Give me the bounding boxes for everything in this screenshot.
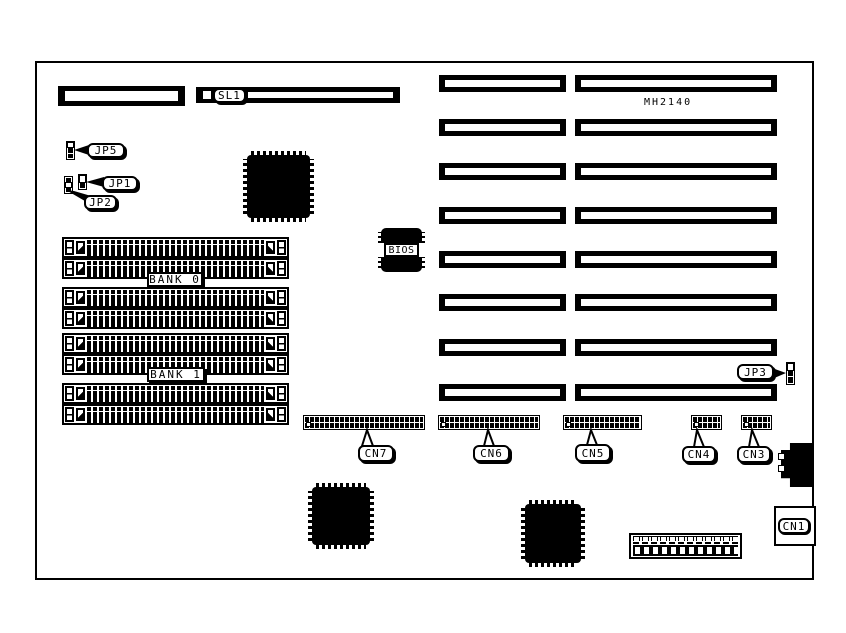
socket-clip xyxy=(76,408,85,421)
socket-clip xyxy=(76,241,85,254)
socket-clip xyxy=(76,262,85,275)
cn7-label: CN7 xyxy=(358,445,394,462)
pin1-marker xyxy=(306,422,311,427)
board-model-text: MH2140 xyxy=(644,97,692,108)
isa-slot-bar xyxy=(439,294,566,311)
isa-slot-bar xyxy=(575,384,777,401)
cn5-header xyxy=(563,415,642,430)
pin1-marker xyxy=(694,422,699,427)
socket-clip xyxy=(76,312,85,325)
jp1-label: JP1 xyxy=(102,176,138,191)
isa-slot-bar xyxy=(439,163,566,180)
slot-pin-marker xyxy=(203,91,211,99)
isa-slot-bar xyxy=(575,251,777,268)
cn3-label: CN3 xyxy=(737,446,771,463)
socket-pins xyxy=(87,311,264,327)
socket-endcap xyxy=(277,357,286,372)
socket-endcap xyxy=(277,261,286,276)
slot-stripe xyxy=(248,92,393,98)
power-pins xyxy=(633,545,738,556)
simm-socket xyxy=(62,237,289,258)
jp3-jumper xyxy=(786,362,795,385)
bios-chip: BIOS xyxy=(378,228,425,272)
socket-clip xyxy=(266,262,275,275)
socket-endcap xyxy=(277,407,286,422)
jp1-jumper xyxy=(78,174,87,190)
isa-slot-bar xyxy=(575,75,777,92)
cn6-header xyxy=(438,415,540,430)
socket-clip xyxy=(266,291,275,304)
socket-clip xyxy=(266,358,275,371)
socket-clip xyxy=(76,358,85,371)
bank0-label: BANK 0 xyxy=(147,272,203,287)
isa-slot-bar xyxy=(575,119,777,136)
isa-slot-bar xyxy=(439,75,566,92)
chip-body xyxy=(312,487,370,545)
jp5-label: JP5 xyxy=(87,143,125,158)
cn3-header xyxy=(741,415,772,430)
cn6-label: CN6 xyxy=(473,445,510,462)
sl1-label: SL1 xyxy=(213,88,246,103)
isa-slot-bar xyxy=(439,339,566,356)
slot-stripe xyxy=(65,91,178,101)
socket-endcap xyxy=(65,240,74,255)
simm-socket xyxy=(62,383,289,404)
qfp-chip xyxy=(243,151,314,222)
bios-label: BIOS xyxy=(384,243,418,257)
cn7-header xyxy=(303,415,425,430)
socket-clip xyxy=(266,337,275,350)
socket-clip xyxy=(266,387,275,400)
socket-endcap xyxy=(65,386,74,401)
qfp-chip xyxy=(308,483,374,549)
socket-endcap xyxy=(277,311,286,326)
cn1-connector: CN1 xyxy=(774,506,816,546)
power-connector xyxy=(629,533,742,559)
isa-slot-bar xyxy=(575,339,777,356)
chip-body xyxy=(247,155,310,218)
power-divider xyxy=(633,542,738,544)
simm-socket xyxy=(62,404,289,425)
pin1-marker xyxy=(566,422,571,427)
isa-slot-bar xyxy=(439,251,566,268)
isa-slot-bar xyxy=(439,207,566,224)
jp5-jumper xyxy=(66,141,75,160)
socket-endcap xyxy=(277,290,286,305)
connector-notch xyxy=(778,465,785,472)
socket-pins xyxy=(87,240,264,256)
socket-endcap xyxy=(277,336,286,351)
socket-clip xyxy=(266,408,275,421)
qfp-chip xyxy=(521,500,585,567)
connector-notch xyxy=(778,453,785,460)
bank1-label: BANK 1 xyxy=(147,367,205,382)
simm-socket xyxy=(62,333,289,354)
socket-clip xyxy=(76,387,85,400)
socket-clip xyxy=(76,291,85,304)
socket-endcap xyxy=(65,311,74,326)
socket-endcap xyxy=(277,240,286,255)
edge-slot xyxy=(58,86,185,106)
isa-slot-bar xyxy=(439,119,566,136)
socket-endcap xyxy=(65,290,74,305)
socket-endcap xyxy=(65,357,74,372)
jp2-label: JP2 xyxy=(84,195,117,210)
pin1-marker xyxy=(744,422,749,427)
power-clips xyxy=(633,536,738,541)
isa-slot-bar xyxy=(575,163,777,180)
socket-endcap xyxy=(65,336,74,351)
isa-slot-bar xyxy=(575,294,777,311)
isa-slot-bar xyxy=(575,207,777,224)
socket-pins xyxy=(87,386,264,402)
socket-endcap xyxy=(65,261,74,276)
pin1-marker xyxy=(441,422,446,427)
simm-socket xyxy=(62,308,289,329)
socket-clip xyxy=(266,241,275,254)
cn1-label: CN1 xyxy=(778,518,810,534)
socket-endcap xyxy=(65,407,74,422)
cn4-label: CN4 xyxy=(682,446,716,463)
cn4-header xyxy=(691,415,722,430)
bios-label-band: BIOS xyxy=(378,243,425,257)
socket-pins xyxy=(87,290,264,306)
jp2-jumper xyxy=(64,176,73,194)
socket-endcap xyxy=(277,386,286,401)
cn5-label: CN5 xyxy=(575,444,611,462)
simm-socket xyxy=(62,287,289,308)
isa-slot-bar xyxy=(439,384,566,401)
socket-pins xyxy=(87,407,264,423)
motherboard-diagram: SL1 MH2140 B xyxy=(0,0,846,633)
socket-clip xyxy=(76,337,85,350)
socket-clip xyxy=(266,312,275,325)
chip-body xyxy=(525,504,581,563)
jp3-label: JP3 xyxy=(737,364,774,380)
socket-pins xyxy=(87,336,264,352)
